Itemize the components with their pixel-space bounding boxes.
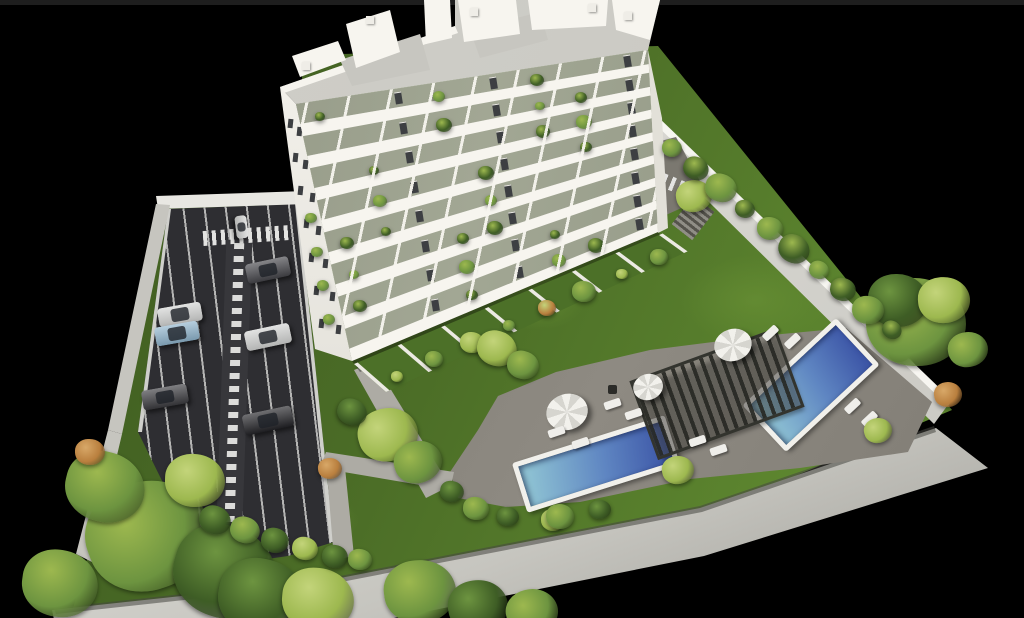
terrace-bush [503, 320, 515, 331]
bush [347, 549, 372, 572]
hedge-tree [828, 276, 858, 303]
bush [861, 414, 894, 445]
hedge-tree [756, 217, 783, 241]
bush [321, 543, 350, 569]
bush [438, 480, 465, 505]
hedge-tree [806, 258, 830, 281]
hedge-tree [734, 198, 757, 219]
bush [497, 507, 520, 527]
terrace-bush [650, 249, 668, 265]
bush [462, 495, 490, 520]
palm-tree [164, 453, 226, 508]
bush [545, 503, 574, 529]
bush [290, 534, 320, 561]
bush [588, 499, 612, 521]
terrace-bush [572, 281, 596, 302]
vegetation-layer [0, 0, 1024, 618]
architectural-render-canvas [0, 0, 1024, 618]
terrace-bush [391, 371, 403, 382]
terrace-bush [616, 269, 628, 280]
hedge-tree [662, 139, 682, 157]
bush [932, 380, 963, 408]
terrace-bush [425, 351, 443, 367]
palm-tree [502, 584, 563, 618]
bush [660, 454, 696, 487]
bush [75, 439, 105, 466]
terrace-bush [538, 300, 556, 316]
bush [317, 458, 342, 481]
